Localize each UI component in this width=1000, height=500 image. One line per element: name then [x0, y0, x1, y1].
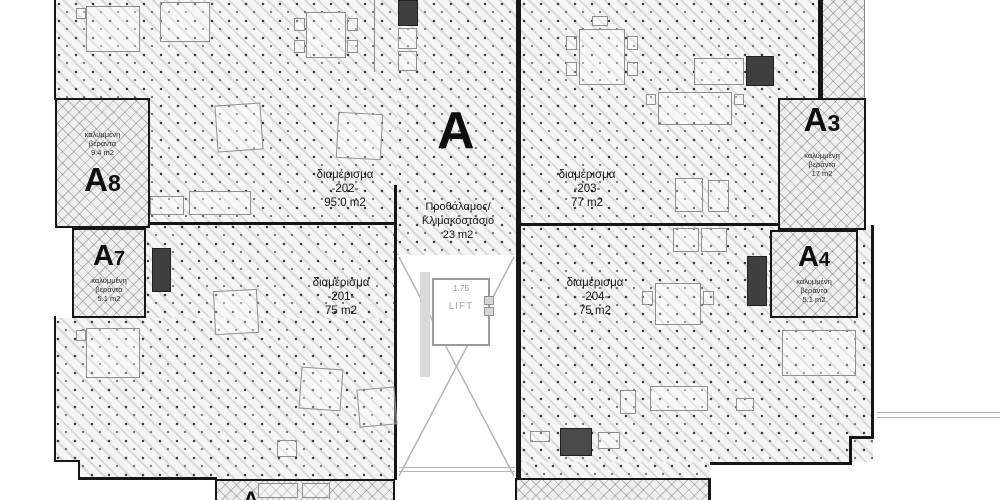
lift-label: LIFT — [434, 301, 488, 312]
wall — [54, 0, 56, 100]
armchair — [620, 390, 636, 414]
stair-landing-line — [399, 471, 515, 472]
table — [655, 283, 701, 325]
sofa — [189, 191, 251, 215]
side-table — [277, 440, 297, 457]
veranda-A4-label: A4 — [798, 244, 830, 272]
veranda-bottom-right — [515, 478, 711, 500]
apartment-204-label: διαμέρισμα -204- 75 m2 — [530, 276, 660, 318]
balcony-edge-line — [877, 417, 1000, 418]
kitchen-appliance — [746, 56, 774, 86]
veranda-A8: καλυμμένη βεράντα 9.4 m2 A8 — [55, 98, 150, 228]
lift-dimension: 1.75 — [434, 283, 488, 293]
wall-201-bottom — [80, 477, 217, 480]
veranda-A3-desc: καλυμμένη βεράντα 17 m2 — [804, 151, 840, 178]
hall-area: 23 m2 — [394, 228, 522, 242]
chair — [566, 62, 577, 76]
veranda-A7-label: A7 — [93, 243, 125, 271]
apartment-202-label: διαμέρισμα -202- 95.0 m2 — [280, 168, 410, 210]
veranda-A8-desc: καλυμμένη βεράντα 9.4 m2 — [85, 130, 121, 157]
side-table — [530, 431, 550, 442]
apartment-name: διαμέρισμα — [276, 276, 406, 290]
nightstand — [76, 8, 86, 19]
chair — [294, 18, 305, 31]
apartment-area: 95.0 m2 — [280, 196, 410, 210]
chair — [566, 36, 577, 50]
chair — [347, 18, 358, 31]
sofa — [650, 386, 708, 411]
building-section-label: A — [437, 105, 475, 157]
chair — [627, 36, 638, 50]
planter — [258, 483, 298, 498]
apartment-area: 77 m2 — [522, 196, 652, 210]
floor-plan: 1.75 LIFT — [0, 0, 1000, 500]
bed — [86, 328, 140, 378]
wall-204-step-h — [850, 436, 874, 439]
chair — [347, 40, 358, 53]
wall-201-notch — [55, 460, 80, 480]
lift-door-jamb — [484, 307, 494, 316]
apartment-number: -203- — [522, 182, 652, 196]
side-table — [736, 398, 754, 411]
bed — [782, 330, 856, 376]
radiator — [152, 248, 171, 292]
apartment-area: 75 m2 — [530, 304, 660, 318]
veranda-A3-label: A3 — [804, 104, 841, 135]
wall — [54, 316, 56, 462]
apartment-203-label: διαμέρισμα -203- 77 m2 — [522, 168, 652, 210]
apartment-204-floor-strip — [516, 462, 711, 478]
table — [213, 289, 259, 335]
chair — [294, 40, 305, 53]
veranda-A7-desc: καλυμμένη βεράντα 5.1 m2 — [91, 276, 127, 303]
bed — [658, 92, 732, 125]
dining-table — [579, 29, 625, 85]
kitchen-unit — [398, 28, 417, 49]
table — [356, 386, 397, 427]
kitchen-unit — [398, 51, 417, 71]
cabinet — [673, 228, 699, 252]
apartment-name: διαμέρισμα — [522, 168, 652, 182]
hall-name-line2: Κλιμακοστάσιο — [394, 214, 522, 228]
side-table — [598, 432, 620, 449]
apartment-number: -202- — [280, 182, 410, 196]
wall-divider-right — [521, 223, 778, 226]
table — [299, 367, 344, 412]
chair — [592, 16, 608, 26]
armchair — [708, 180, 729, 212]
apartment-201-label: διαμέρισμα -201- 75 m2 — [276, 276, 406, 318]
balcony-edge-line — [877, 412, 1000, 413]
veranda-A8-label: A8 — [84, 164, 121, 195]
veranda-A3: A3 καλυμμένη βεράντα 17 m2 — [778, 98, 866, 230]
nightstand — [734, 94, 744, 105]
apartment-number: -204- — [530, 290, 660, 304]
wall-204-step-v — [849, 436, 852, 465]
table — [214, 102, 263, 152]
hall-label: Προθάλαμος/ Κλιμακοστάσιο 23 m2 — [394, 200, 522, 242]
apartment-name: διαμέρισμα — [280, 168, 410, 182]
wardrobe — [160, 2, 210, 42]
apartment-name: διαμέρισμα — [530, 276, 660, 290]
wall-204-bottom — [710, 462, 852, 465]
lift-door-jamb — [484, 296, 494, 305]
armchair — [675, 178, 703, 212]
planter — [302, 483, 330, 498]
hall-name-line1: Προθάλαμος/ — [394, 200, 522, 214]
kitchen-stove — [398, 0, 418, 26]
stair-landing-line — [399, 467, 515, 468]
veranda-A7: A7 καλυμμένη βεράντα 5.1 m2 — [72, 228, 146, 318]
wall-204-right — [871, 225, 874, 438]
nightstand — [76, 330, 86, 341]
clipped-unit-label: A — [243, 489, 259, 500]
wall-divider-left — [148, 222, 397, 225]
veranda-A4: A4 καλυμμένη βεράντα 5.1 m2 — [770, 230, 858, 318]
sofa — [150, 196, 184, 215]
dining-table — [306, 12, 346, 58]
lift-shaft: 1.75 LIFT — [432, 278, 490, 346]
veranda-A4-desc: καλυμμένη βεράντα 5.1 m2 — [796, 277, 832, 304]
wardrobe — [747, 256, 767, 306]
table — [336, 112, 383, 160]
lift-wall-strip — [420, 272, 430, 377]
nightstand — [646, 94, 656, 105]
kitchen-partition-line — [374, 0, 375, 72]
kitchen-counter — [694, 58, 744, 85]
bed — [86, 6, 140, 52]
cabinet — [701, 228, 727, 252]
tv-unit — [560, 428, 592, 456]
chair — [703, 291, 714, 305]
apartment-number: -201- — [276, 290, 406, 304]
chair — [627, 62, 638, 76]
apartment-area: 75 m2 — [276, 304, 406, 318]
